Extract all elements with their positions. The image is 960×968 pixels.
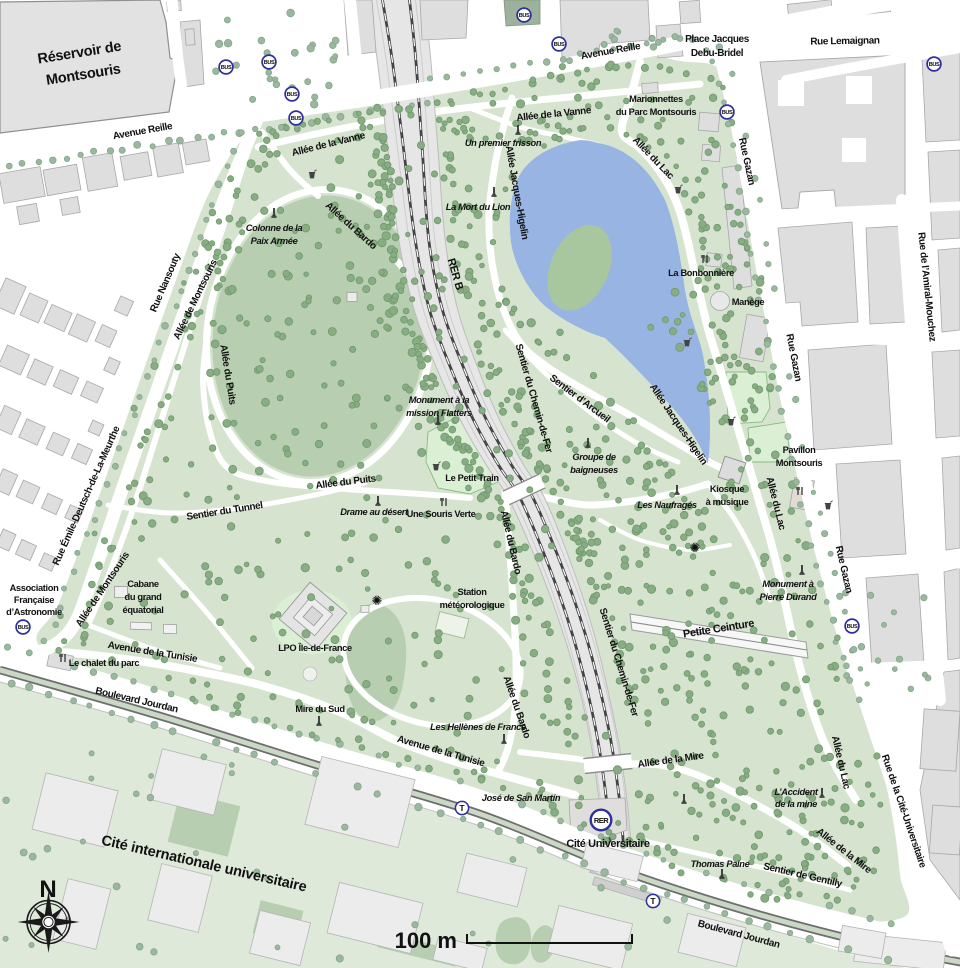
svg-text:Montsouris: Montsouris — [776, 458, 823, 468]
svg-text:Monument à: Monument à — [762, 579, 813, 589]
svg-text:T: T — [459, 803, 465, 813]
svg-text:Station: Station — [457, 587, 487, 597]
svg-text:Le chalet du parc: Le chalet du parc — [69, 658, 140, 668]
svg-text:Place Jacques: Place Jacques — [685, 34, 750, 45]
svg-text:Monument à la: Monument à la — [409, 395, 470, 405]
svg-text:BUS: BUS — [847, 624, 858, 630]
svg-text:RER: RER — [594, 816, 609, 825]
svg-text:Pavillon: Pavillon — [783, 445, 817, 455]
svg-text:Rue Lemaignan: Rue Lemaignan — [810, 35, 880, 47]
svg-text:baigneuses: baigneuses — [570, 465, 618, 475]
svg-text:BUS: BUS — [722, 110, 733, 116]
svg-text:météorologique: météorologique — [440, 600, 505, 610]
svg-text:du Parc Montsouris: du Parc Montsouris — [616, 107, 697, 117]
svg-text:BUS: BUS — [264, 60, 275, 66]
svg-text:100 m: 100 m — [395, 928, 457, 953]
svg-text:Française: Française — [14, 595, 54, 605]
svg-text:Le Petit Train: Le Petit Train — [445, 473, 499, 483]
svg-text:Les Hellènes de France: Les Hellènes de France — [430, 722, 526, 732]
svg-text:La Mort du Lion: La Mort du Lion — [446, 202, 511, 212]
svg-text:Marionnettes: Marionnettes — [629, 94, 683, 104]
svg-text:BUS: BUS — [554, 42, 565, 48]
svg-text:Kiosque: Kiosque — [710, 484, 744, 494]
svg-text:BUS: BUS — [929, 62, 940, 68]
svg-text:BUS: BUS — [291, 116, 302, 122]
svg-text:Une Souris Verte: Une Souris Verte — [407, 509, 476, 519]
svg-text:Drame au désert: Drame au désert — [340, 507, 409, 517]
svg-text:Cité Universitaire: Cité Universitaire — [566, 838, 650, 850]
svg-text:Mire du Sud: Mire du Sud — [295, 704, 345, 714]
svg-text:La Bonbonnière: La Bonbonnière — [668, 268, 734, 278]
svg-text:BUS: BUS — [18, 625, 29, 631]
svg-text:Manège: Manège — [732, 297, 765, 307]
svg-text:✺: ✺ — [690, 540, 701, 555]
svg-text:du grand: du grand — [125, 592, 163, 602]
svg-text:N: N — [39, 876, 56, 903]
svg-text:de la mine: de la mine — [775, 799, 817, 809]
svg-text:d’Astronomie: d’Astronomie — [6, 607, 62, 617]
svg-text:Paix Armée: Paix Armée — [251, 236, 298, 246]
svg-text:L’Accident: L’Accident — [774, 787, 819, 797]
svg-text:Les Naufragés: Les Naufragés — [637, 500, 697, 510]
svg-text:Thomas Paine: Thomas Paine — [691, 859, 750, 869]
svg-text:BUS: BUS — [221, 65, 232, 71]
svg-text:équatorial: équatorial — [123, 605, 164, 615]
svg-text:Association: Association — [10, 583, 60, 593]
svg-text:✺: ✺ — [372, 593, 383, 608]
svg-text:Pierre Durand: Pierre Durand — [760, 592, 818, 602]
svg-text:Groupe de: Groupe de — [572, 452, 616, 462]
svg-text:BUS: BUS — [519, 13, 530, 19]
svg-text:T: T — [650, 896, 656, 906]
svg-text:José de San Martín: José de San Martín — [482, 793, 561, 803]
svg-text:BUS: BUS — [287, 92, 298, 98]
svg-text:mission Flatters: mission Flatters — [406, 408, 472, 418]
svg-text:Colonne de la: Colonne de la — [246, 223, 303, 233]
svg-text:Un premier frisson: Un premier frisson — [465, 138, 542, 148]
svg-text:Debu-Bridel: Debu-Bridel — [691, 48, 744, 59]
svg-text:à musique: à musique — [706, 497, 749, 507]
svg-text:LPO Île-de-France: LPO Île-de-France — [278, 642, 352, 653]
svg-text:Cabane: Cabane — [127, 579, 159, 589]
